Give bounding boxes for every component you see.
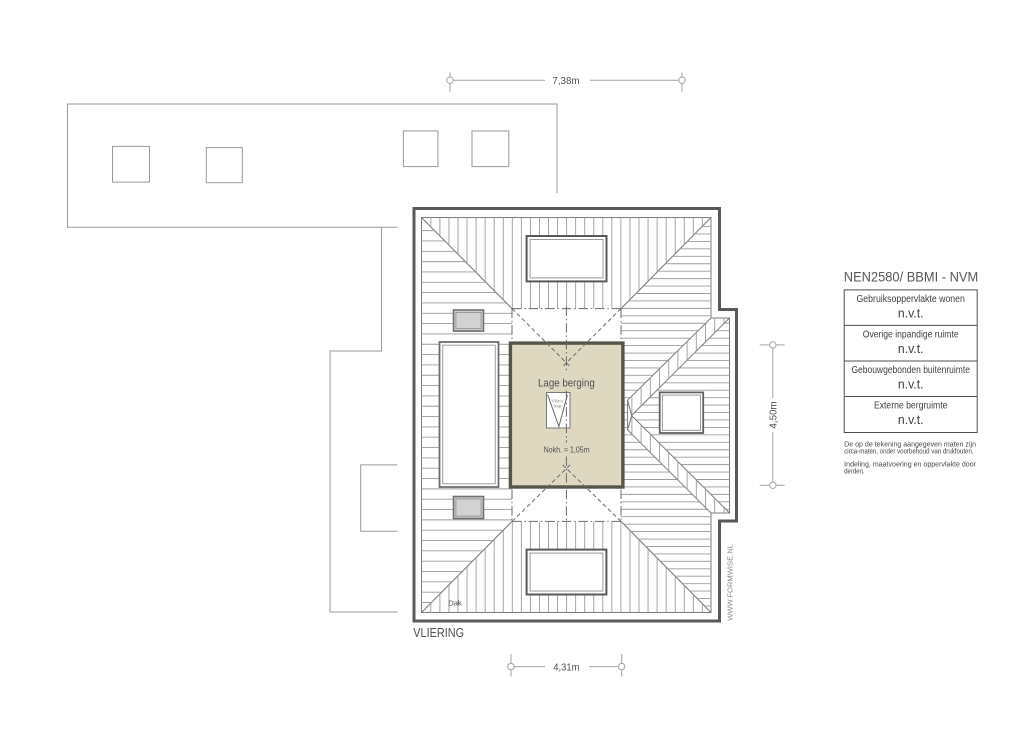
svg-text:derden.: derden. [844,469,864,476]
svg-text:n.v.t.: n.v.t. [898,341,924,356]
svg-text:Dak: Dak [448,599,462,608]
svg-text:Indeling, maatvoering en opper: Indeling, maatvoering en oppervlakte doo… [844,462,976,469]
svg-text:VLIERING: VLIERING [413,626,464,640]
svg-text:Lage berging: Lage berging [538,377,595,389]
svg-text:Vlizo-: Vlizo- [552,398,564,403]
svg-text:7,38m: 7,38m [552,75,579,87]
svg-text:n.v.t.: n.v.t. [898,305,924,320]
svg-text:trap: trap [554,404,562,409]
svg-text:Externe bergruimte: Externe bergruimte [874,401,948,412]
svg-text:4,50m: 4,50m [767,401,779,428]
svg-text:4,31m: 4,31m [553,661,579,673]
svg-text:NEN2580/ BBMI - NVM: NEN2580/ BBMI - NVM [844,270,978,285]
svg-text:WWW.FORMWISE.NL: WWW.FORMWISE.NL [725,544,734,621]
svg-text:Nokh. = 1,05m: Nokh. = 1,05m [544,445,590,455]
svg-text:n.v.t.: n.v.t. [898,376,924,391]
svg-text:Gebouwgebonden buitenruimte: Gebouwgebonden buitenruimte [851,365,970,376]
svg-text:n.v.t.: n.v.t. [898,412,924,427]
svg-text:Gebruiksoppervlakte wonen: Gebruiksoppervlakte wonen [857,294,965,305]
svg-text:Overige inpandige ruimte: Overige inpandige ruimte [863,330,959,341]
svg-text:circa-maten, onder voorbehoud: circa-maten, onder voorbehoud van drukfo… [844,449,973,456]
